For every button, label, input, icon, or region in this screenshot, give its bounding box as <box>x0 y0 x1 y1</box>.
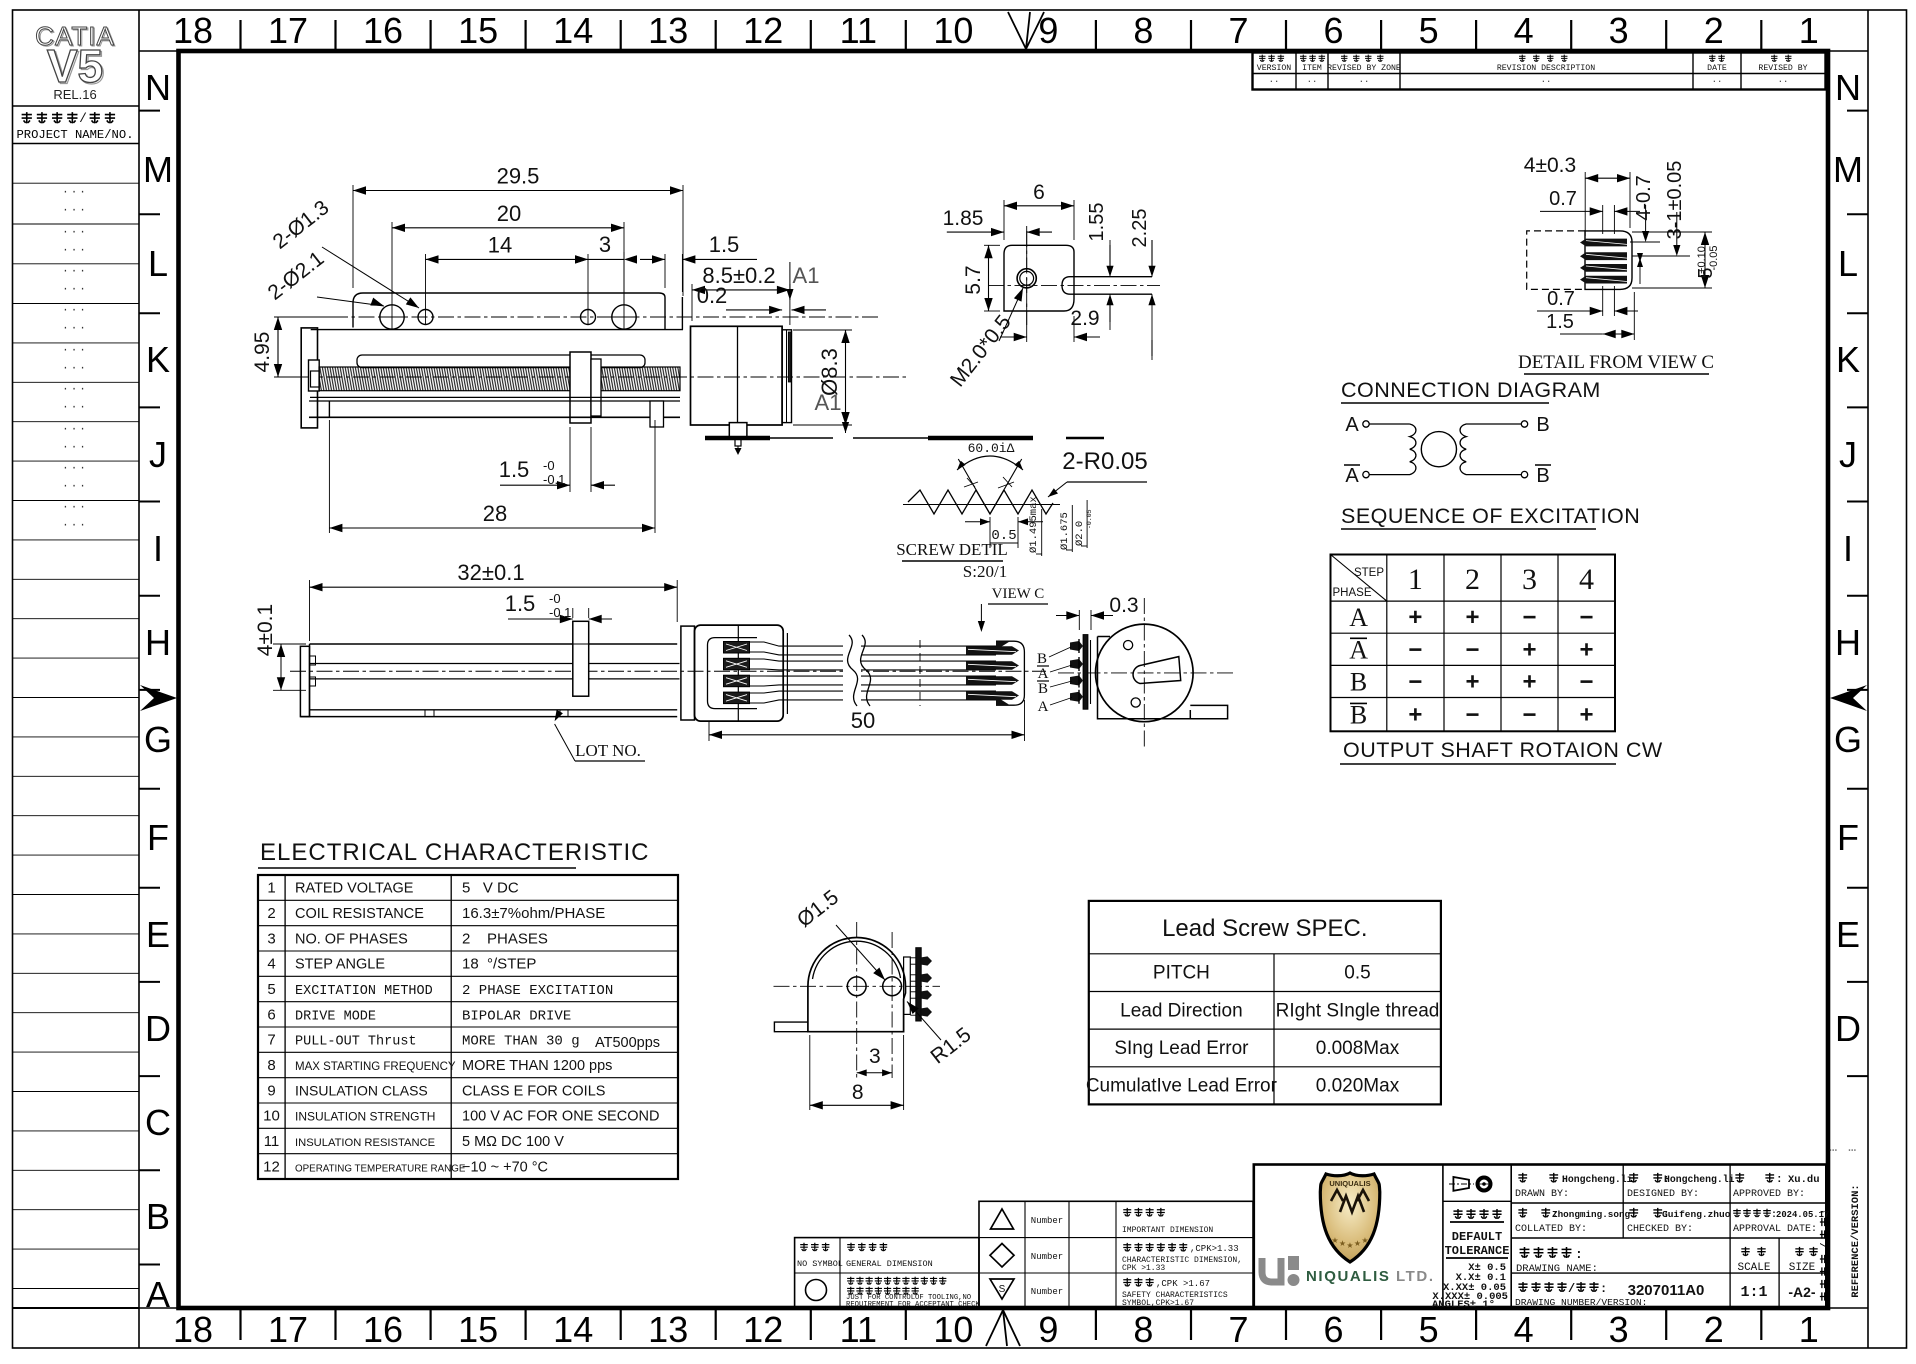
svg-text:9: 9 <box>1038 1309 1058 1350</box>
svg-text:REVISED BY: REVISED BY <box>1758 64 1807 73</box>
svg-text:F: F <box>1837 817 1859 858</box>
svg-text:14: 14 <box>553 10 593 51</box>
svg-text:Ø2.0: Ø2.0 <box>1074 521 1086 546</box>
svg-text:B: B <box>1536 414 1549 436</box>
svg-text:ELECTRICAL CHARACTERISTIC: ELECTRICAL CHARACTERISTIC <box>260 839 650 866</box>
svg-text:ANGLES± 1°: ANGLES± 1° <box>1432 1299 1495 1311</box>
svg-text:2.9: 2.9 <box>1070 307 1099 330</box>
svg-text:15: 15 <box>458 1309 498 1350</box>
svg-text:6: 6 <box>1323 10 1343 51</box>
svg-text:4: 4 <box>267 956 275 973</box>
svg-text:Lead Direction: Lead Direction <box>1120 1000 1243 1021</box>
svg-text:F: F <box>147 817 169 858</box>
svg-text:7: 7 <box>1228 1309 1248 1350</box>
svg-text:12: 12 <box>263 1158 280 1175</box>
svg-text:A: A <box>1038 699 1049 715</box>
svg-text:3: 3 <box>599 232 611 257</box>
svg-text:APPROVED BY:: APPROVED BY: <box>1733 1189 1805 1200</box>
svg-text:3: 3 <box>267 930 275 947</box>
svg-text:7: 7 <box>1228 10 1248 51</box>
svg-text:V5: V5 <box>47 40 103 92</box>
svg-text:+: + <box>1522 669 1536 696</box>
svg-text:2 PHASES: 2 PHASES <box>462 930 548 947</box>
svg-text:PULL-OUT Thrust: PULL-OUT Thrust <box>295 1035 417 1050</box>
svg-text:11: 11 <box>840 1309 877 1350</box>
svg-text:+: + <box>1465 604 1479 631</box>
svg-text:+: + <box>1408 701 1422 728</box>
svg-text:N: N <box>1835 67 1861 108</box>
svg-text:E: E <box>146 914 170 955</box>
svg-text:−: − <box>1522 604 1536 631</box>
svg-text:REL.16: REL.16 <box>53 87 96 102</box>
svg-text:···: ··· <box>62 266 88 278</box>
svg-text:12: 12 <box>743 1309 783 1350</box>
svg-text:Number: Number <box>1031 1287 1063 1297</box>
svg-text:A: A <box>1345 414 1359 436</box>
svg-text:8: 8 <box>1133 1309 1153 1350</box>
svg-text:···: ··· <box>62 227 88 239</box>
svg-text:29.5: 29.5 <box>497 164 540 189</box>
svg-text:3207011A0: 3207011A0 <box>1628 1282 1705 1299</box>
svg-text:E: E <box>1836 914 1860 955</box>
svg-text:−: − <box>1408 636 1422 663</box>
svg-text:INSULATION STRENGTH: INSULATION STRENGTH <box>295 1110 435 1124</box>
svg-text:INSULATION RESISTANCE: INSULATION RESISTANCE <box>295 1137 435 1149</box>
svg-text:··: ·· <box>1712 77 1723 87</box>
svg-text:/: / <box>79 111 87 126</box>
svg-text:Lead Screw SPEC.: Lead Screw SPEC. <box>1162 915 1367 942</box>
svg-text:Hongcheng.li: Hongcheng.li <box>1562 1174 1633 1185</box>
svg-text:CumulatIve Lead Error: CumulatIve Lead Error <box>1086 1076 1278 1097</box>
svg-text:B: B <box>1536 465 1549 487</box>
svg-text:-0.1: -0.1 <box>543 472 565 487</box>
svg-text:1.85: 1.85 <box>943 207 984 230</box>
svg-text:1: 1 <box>1799 10 1819 51</box>
svg-text:SEQUENCE OF EXCITATION: SEQUENCE OF EXCITATION <box>1341 504 1640 528</box>
svg-text:17: 17 <box>268 10 308 51</box>
svg-text:⁝: ⁝ <box>1829 1148 1841 1152</box>
svg-text:I: I <box>1843 528 1853 569</box>
svg-text:0.7: 0.7 <box>1549 188 1577 210</box>
svg-text:5 MΩ DC 100 V: 5 MΩ DC 100 V <box>462 1134 564 1150</box>
svg-text:A1: A1 <box>793 263 820 288</box>
svg-text:PHASE: PHASE <box>1333 587 1372 599</box>
svg-text:2-R0.05: 2-R0.05 <box>1062 448 1147 475</box>
svg-text:REVISION DESCRIPTION: REVISION DESCRIPTION <box>1497 64 1595 73</box>
svg-text:1: 1 <box>267 880 275 897</box>
svg-text:/: / <box>1568 1282 1575 1296</box>
svg-text:2: 2 <box>1704 10 1724 51</box>
svg-text:18: 18 <box>173 1309 213 1350</box>
svg-text:1: 1 <box>1799 1309 1819 1350</box>
svg-text:0.2: 0.2 <box>697 283 728 308</box>
svg-text:−: − <box>1579 604 1593 631</box>
svg-text:Ø8.3: Ø8.3 <box>817 348 842 396</box>
svg-text:60.0iΔ: 60.0iΔ <box>968 441 1015 456</box>
svg-text:···: ··· <box>62 345 88 357</box>
svg-text:ITEM: ITEM <box>1302 64 1322 73</box>
svg-text:13: 13 <box>648 1309 688 1350</box>
svg-text:A: A <box>1349 635 1368 664</box>
svg-text:RATED VOLTAGE: RATED VOLTAGE <box>295 881 414 897</box>
svg-text:4±0.3: 4±0.3 <box>1524 154 1576 177</box>
svg-text:···: ··· <box>62 384 88 396</box>
svg-text:5 V DC: 5 V DC <box>462 880 519 897</box>
svg-text:⁝: ⁝ <box>1848 1148 1860 1152</box>
svg-text:N: N <box>145 67 171 108</box>
svg-text:···: ··· <box>62 442 88 454</box>
svg-text:+: + <box>1579 636 1593 663</box>
svg-text:6: 6 <box>1323 1309 1343 1350</box>
svg-text:Ø1.495max: Ø1.495max <box>1028 496 1040 553</box>
svg-text:C: C <box>145 1102 171 1143</box>
svg-text:OPERATING TEMPERATURE RANGE: OPERATING TEMPERATURE RANGE <box>295 1163 466 1174</box>
svg-text:3: 3 <box>1609 1309 1629 1350</box>
svg-text:−: − <box>1579 669 1593 696</box>
svg-text:D: D <box>1835 1008 1861 1049</box>
svg-text:AT500pps: AT500pps <box>595 1035 660 1051</box>
svg-text:LTD.: LTD. <box>1396 1268 1435 1285</box>
svg-text:Zhongming.song: Zhongming.song <box>1552 1209 1631 1220</box>
svg-text:M: M <box>143 149 173 190</box>
svg-text:0.7: 0.7 <box>1547 288 1575 310</box>
svg-text:RIght SIngle thread: RIght SIngle thread <box>1276 1000 1440 1021</box>
svg-text:DRAWING NAME:: DRAWING NAME: <box>1516 1263 1598 1275</box>
svg-text:100 V AC FOR ONE SECOND: 100 V AC FOR ONE SECOND <box>462 1109 659 1125</box>
svg-text:1.55: 1.55 <box>1086 203 1108 242</box>
svg-text:18 °/STEP: 18 °/STEP <box>462 956 536 973</box>
svg-text:50: 50 <box>851 708 875 733</box>
svg-text:··: ·· <box>1269 77 1280 87</box>
svg-text:···: ··· <box>62 205 88 217</box>
svg-text:+: + <box>1522 636 1536 663</box>
svg-text:CHECKED BY:: CHECKED BY: <box>1627 1224 1693 1235</box>
svg-text:28: 28 <box>483 501 507 526</box>
svg-text:REFERENCE/VERSION:: REFERENCE/VERSION: <box>1850 1184 1862 1297</box>
svg-text:REVISED BY ZONE: REVISED BY ZONE <box>1327 64 1401 73</box>
svg-text:S: S <box>999 1284 1006 1295</box>
svg-text:3: 3 <box>1609 10 1629 51</box>
svg-text:SCALE: SCALE <box>1737 1262 1770 1274</box>
svg-text:VERSION: VERSION <box>1257 64 1291 73</box>
svg-text:··: ·· <box>1778 77 1789 87</box>
svg-text:PROJECT NAME/NO.: PROJECT NAME/NO. <box>16 128 133 142</box>
svg-text:NO SYMBOL: NO SYMBOL <box>797 1259 843 1269</box>
svg-text:3: 3 <box>869 1045 881 1068</box>
svg-text:L: L <box>1838 243 1858 284</box>
svg-text:-0.1: -0.1 <box>549 605 571 620</box>
svg-text:5: 5 <box>1419 1309 1439 1350</box>
svg-text:Hongcheng.li: Hongcheng.li <box>1664 1174 1735 1185</box>
svg-text:CLASS E FOR COILS: CLASS E FOR COILS <box>462 1083 605 1099</box>
svg-text:2 PHASE EXCITATION: 2 PHASE EXCITATION <box>462 983 613 999</box>
svg-text:DESIGNED BY:: DESIGNED BY: <box>1627 1189 1699 1200</box>
svg-text:−10 ~ +70 °C: −10 ~ +70 °C <box>462 1159 548 1175</box>
svg-text:+: + <box>1408 604 1422 631</box>
svg-text:LOT NO.: LOT NO. <box>575 741 641 760</box>
svg-text:14: 14 <box>553 1309 593 1350</box>
svg-text:★: ★ <box>1339 1239 1346 1248</box>
svg-text:10: 10 <box>263 1108 280 1125</box>
svg-text:CPK >1.33: CPK >1.33 <box>1122 1264 1165 1273</box>
svg-text:APPROVAL DATE:: APPROVAL DATE: <box>1733 1224 1817 1235</box>
svg-text:−: − <box>1408 669 1422 696</box>
svg-text:4.95: 4.95 <box>251 332 274 373</box>
svg-text:10: 10 <box>933 1309 973 1350</box>
svg-text:3-1±0.05: 3-1±0.05 <box>1664 161 1686 240</box>
svg-text:5.7: 5.7 <box>962 265 985 294</box>
svg-text:··: ·· <box>1359 77 1370 87</box>
svg-text::: : <box>1776 1174 1783 1186</box>
svg-text:14: 14 <box>488 232 512 257</box>
svg-text:S:20/1: S:20/1 <box>963 562 1007 581</box>
svg-text:-0: -0 <box>543 458 555 473</box>
svg-text:Ø1.675: Ø1.675 <box>1059 512 1071 550</box>
svg-text:Number: Number <box>1031 1216 1063 1226</box>
svg-text:MORE THAN 30 g: MORE THAN 30 g <box>462 1034 580 1050</box>
svg-text:★: ★ <box>1354 1239 1361 1248</box>
svg-text:···: ··· <box>62 481 88 493</box>
svg-text:1: 1 <box>1408 563 1423 596</box>
svg-text:8: 8 <box>1133 10 1153 51</box>
svg-text:4: 4 <box>1514 1309 1534 1350</box>
svg-text:GENERAL DIMENSION: GENERAL DIMENSION <box>846 1259 933 1269</box>
svg-text:PITCH: PITCH <box>1153 963 1210 984</box>
svg-text:DRIVE MODE: DRIVE MODE <box>295 1009 376 1024</box>
svg-text:16.3±7%ohm/PHASE: 16.3±7%ohm/PHASE <box>462 905 605 922</box>
svg-text:SCREW DETIL: SCREW DETIL <box>896 540 1008 559</box>
svg-text:-0.05: -0.05 <box>1708 245 1720 270</box>
svg-text:,CPK >1.67: ,CPK >1.67 <box>1156 1279 1210 1289</box>
svg-text:+: + <box>1465 669 1479 696</box>
svg-text:20: 20 <box>497 201 521 226</box>
svg-text:4±0.1: 4±0.1 <box>254 604 277 656</box>
svg-text:D: D <box>145 1008 171 1049</box>
svg-text:6: 6 <box>1033 181 1045 204</box>
svg-text:17: 17 <box>268 1309 308 1350</box>
svg-text:A: A <box>1038 666 1049 682</box>
svg-text:···: ··· <box>62 305 88 317</box>
svg-text:···: ··· <box>62 245 88 257</box>
svg-text:SYMBOL,CPK>1.67: SYMBOL,CPK>1.67 <box>1122 1299 1194 1308</box>
svg-text:NIQUALIS: NIQUALIS <box>1306 1268 1390 1285</box>
svg-text:···: ··· <box>62 463 88 475</box>
svg-text:18: 18 <box>173 10 213 51</box>
svg-text:··: ·· <box>1307 77 1318 87</box>
svg-text:4: 4 <box>1514 10 1534 51</box>
svg-text:Number: Number <box>1031 1252 1063 1262</box>
svg-text:-0.05: -0.05 <box>1086 509 1093 529</box>
svg-text:10: 10 <box>933 10 973 51</box>
svg-text:4-0.7: 4-0.7 <box>1633 175 1655 221</box>
svg-text:J: J <box>149 434 167 475</box>
svg-text:COIL RESISTANCE: COIL RESISTANCE <box>295 906 424 922</box>
svg-text::: : <box>1820 1208 1832 1215</box>
svg-text:2.25: 2.25 <box>1129 209 1151 248</box>
svg-text:I: I <box>153 528 163 569</box>
svg-text:···: ··· <box>62 402 88 414</box>
svg-text:IMPORTANT DIMENSION: IMPORTANT DIMENSION <box>1122 1226 1213 1235</box>
svg-text:1.5: 1.5 <box>505 591 536 616</box>
svg-text:B: B <box>1350 668 1367 697</box>
svg-text:★: ★ <box>1331 1236 1338 1245</box>
svg-text:MAX STARTING FREQUENCY: MAX STARTING FREQUENCY <box>295 1061 456 1073</box>
svg-text:0.5: 0.5 <box>1344 963 1370 984</box>
svg-text:Guifeng.zhuo: Guifeng.zhuo <box>1662 1209 1731 1220</box>
svg-text::: : <box>1575 1247 1583 1262</box>
svg-text:SIZE: SIZE <box>1789 1262 1816 1274</box>
svg-text:INSULATION CLASS: INSULATION CLASS <box>295 1082 428 1098</box>
svg-text:5: 5 <box>267 981 275 998</box>
svg-text:,CPK>1.33: ,CPK>1.33 <box>1190 1244 1239 1254</box>
svg-text:OUTPUT SHAFT ROTAION CW: OUTPUT SHAFT ROTAION CW <box>1343 738 1663 762</box>
svg-text:★: ★ <box>1361 1236 1368 1245</box>
svg-text:K: K <box>1836 339 1860 380</box>
svg-text:MORE THAN 1200 pps: MORE THAN 1200 pps <box>462 1058 612 1074</box>
svg-text:4: 4 <box>1579 563 1594 596</box>
svg-text:VIEW C: VIEW C <box>992 586 1045 602</box>
svg-text:9: 9 <box>267 1082 275 1099</box>
svg-text:B: B <box>1037 651 1047 667</box>
svg-text:Xu.du: Xu.du <box>1788 1174 1820 1186</box>
svg-text:11: 11 <box>264 1133 280 1150</box>
svg-text:2: 2 <box>1704 1309 1724 1350</box>
svg-text:1.5: 1.5 <box>1546 311 1574 333</box>
svg-text:7: 7 <box>267 1032 275 1049</box>
svg-text:+0.10: +0.10 <box>1696 246 1708 274</box>
svg-text:···: ··· <box>62 520 88 532</box>
svg-text:+: + <box>1579 701 1593 728</box>
svg-text:B: B <box>1038 681 1048 697</box>
svg-text:NO. OF PHASES: NO. OF PHASES <box>295 931 408 947</box>
svg-text:···: ··· <box>62 187 88 199</box>
svg-text:···: ··· <box>62 284 88 296</box>
svg-text:6: 6 <box>267 1006 275 1023</box>
svg-text:UNIQUALIS: UNIQUALIS <box>1329 1179 1370 1188</box>
svg-text:COLLATED BY:: COLLATED BY: <box>1515 1224 1587 1235</box>
svg-text:DETAIL FROM VIEW C: DETAIL FROM VIEW C <box>1518 352 1714 373</box>
svg-text:DRAWN BY:: DRAWN BY: <box>1515 1189 1569 1200</box>
svg-text:8: 8 <box>852 1081 864 1104</box>
svg-text:···: ··· <box>62 323 88 335</box>
svg-text:0.020Max: 0.020Max <box>1316 1076 1400 1097</box>
svg-text:··: ·· <box>1541 77 1552 87</box>
svg-text:-A2-: -A2- <box>1788 1284 1816 1300</box>
svg-text:−: − <box>1465 701 1479 728</box>
svg-text:32±0.1: 32±0.1 <box>457 560 524 585</box>
svg-text:1.5: 1.5 <box>499 457 530 482</box>
svg-text:1:1: 1:1 <box>1740 1284 1767 1301</box>
svg-text:M: M <box>1833 149 1863 190</box>
svg-text:12: 12 <box>743 10 783 51</box>
svg-text:B: B <box>146 1196 170 1237</box>
svg-text:REQUIREMENT FOR ACCEPTANT CHEC: REQUIREMENT FOR ACCEPTANT CHECK <box>846 1301 980 1309</box>
svg-text:5: 5 <box>1419 10 1439 51</box>
svg-text:15: 15 <box>458 10 498 51</box>
svg-text::: : <box>1600 1282 1607 1296</box>
svg-text:G: G <box>144 719 172 760</box>
svg-text:−: − <box>1522 701 1536 728</box>
svg-text:B: B <box>1350 700 1367 729</box>
svg-text:-0: -0 <box>549 591 561 606</box>
svg-text:TOLERANCE: TOLERANCE <box>1445 1244 1510 1258</box>
svg-text:DEFAULT: DEFAULT <box>1452 1230 1502 1244</box>
svg-text:SIng Lead Error: SIng Lead Error <box>1114 1038 1249 1059</box>
svg-text:0.008Max: 0.008Max <box>1316 1038 1400 1059</box>
svg-text:J: J <box>1839 434 1857 475</box>
svg-text:A: A <box>1349 603 1368 632</box>
svg-text:16: 16 <box>363 10 403 51</box>
svg-text:1.5: 1.5 <box>709 232 740 257</box>
svg-text:DATE: DATE <box>1707 64 1727 73</box>
svg-text:A: A <box>1345 465 1359 487</box>
svg-text:2: 2 <box>1465 563 1480 596</box>
svg-text:2: 2 <box>267 905 275 922</box>
svg-text:/: / <box>1820 1242 1832 1249</box>
svg-text:STEP: STEP <box>1354 567 1384 579</box>
svg-text:H: H <box>145 622 171 663</box>
svg-text:EXCITATION METHOD: EXCITATION METHOD <box>295 984 433 999</box>
svg-text:···: ··· <box>62 363 88 375</box>
svg-text:H: H <box>1835 622 1861 663</box>
svg-text:13: 13 <box>648 10 688 51</box>
svg-text:8: 8 <box>267 1057 275 1074</box>
svg-text:···: ··· <box>62 502 88 514</box>
svg-text:16: 16 <box>363 1309 403 1350</box>
svg-text:11: 11 <box>840 10 877 51</box>
svg-text:−: − <box>1465 636 1479 663</box>
svg-text:K: K <box>146 339 170 380</box>
svg-text:BIPOLAR DRIVE: BIPOLAR DRIVE <box>462 1008 571 1024</box>
svg-text:★: ★ <box>1346 1241 1353 1250</box>
svg-text:0.3: 0.3 <box>1109 594 1138 617</box>
svg-text:L: L <box>148 243 168 284</box>
svg-text:STEP ANGLE: STEP ANGLE <box>295 957 385 973</box>
svg-text:A: A <box>146 1274 170 1315</box>
svg-text:G: G <box>1834 719 1862 760</box>
svg-text:···: ··· <box>62 424 88 436</box>
svg-text:3: 3 <box>1522 563 1537 596</box>
svg-text:CONNECTION DIAGRAM: CONNECTION DIAGRAM <box>1341 378 1601 402</box>
